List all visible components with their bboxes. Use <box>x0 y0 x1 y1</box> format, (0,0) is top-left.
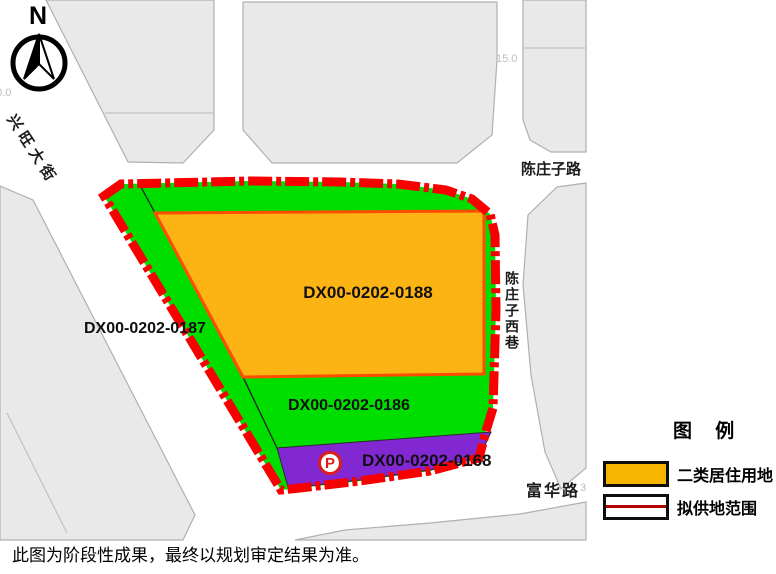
dimension-note-top: 15.0 <box>496 53 517 65</box>
parking-icon: P <box>318 451 342 475</box>
legend-item-supply-boundary: 拟供地范围 <box>603 494 757 520</box>
compass-north-label: N <box>29 2 47 31</box>
parcel-label-0188: DX00-0202-0188 <box>255 283 481 303</box>
legend-item-residential: 二类居住用地 <box>603 461 773 487</box>
block-top-left <box>46 0 214 163</box>
legend-swatch-supply-boundary <box>603 494 669 520</box>
disclaimer-text: 此图为阶段性成果，最终以规划审定结果为准。 <box>12 541 369 566</box>
legend-title: 图 例 <box>673 416 743 443</box>
legend-label-residential: 二类居住用地 <box>677 462 773 486</box>
block-bottom-right <box>295 502 586 540</box>
legend-redline <box>606 505 666 508</box>
street-label-chenzhuangzi-west-lane: 陈庄子西巷 <box>502 271 522 351</box>
block-top-right <box>523 0 586 152</box>
north-arrow-icon <box>13 34 65 89</box>
block-right-middle <box>523 183 586 489</box>
street-label-chenzhuangzi-road: 陈庄子路 <box>521 158 581 179</box>
legend-swatch-residential <box>603 461 669 487</box>
planning-map-page: N 兴旺大街 陈庄子路 陈庄子西巷 富华路 30.0 15.0 3 DX00-0… <box>0 0 776 574</box>
dimension-note-left: 30.0 <box>0 87 11 99</box>
parcel-label-0187: DX00-0202-0187 <box>84 320 206 338</box>
legend-label-supply-boundary: 拟供地范围 <box>677 495 757 519</box>
parcel-label-0168: DX00-0202-0168 <box>362 451 491 471</box>
block-top-middle <box>243 2 497 163</box>
parcel-label-0186: DX00-0202-0186 <box>288 397 410 415</box>
street-label-fuhua-road: 富华路 <box>526 477 580 501</box>
dimension-note-bottom: 3 <box>580 482 586 494</box>
